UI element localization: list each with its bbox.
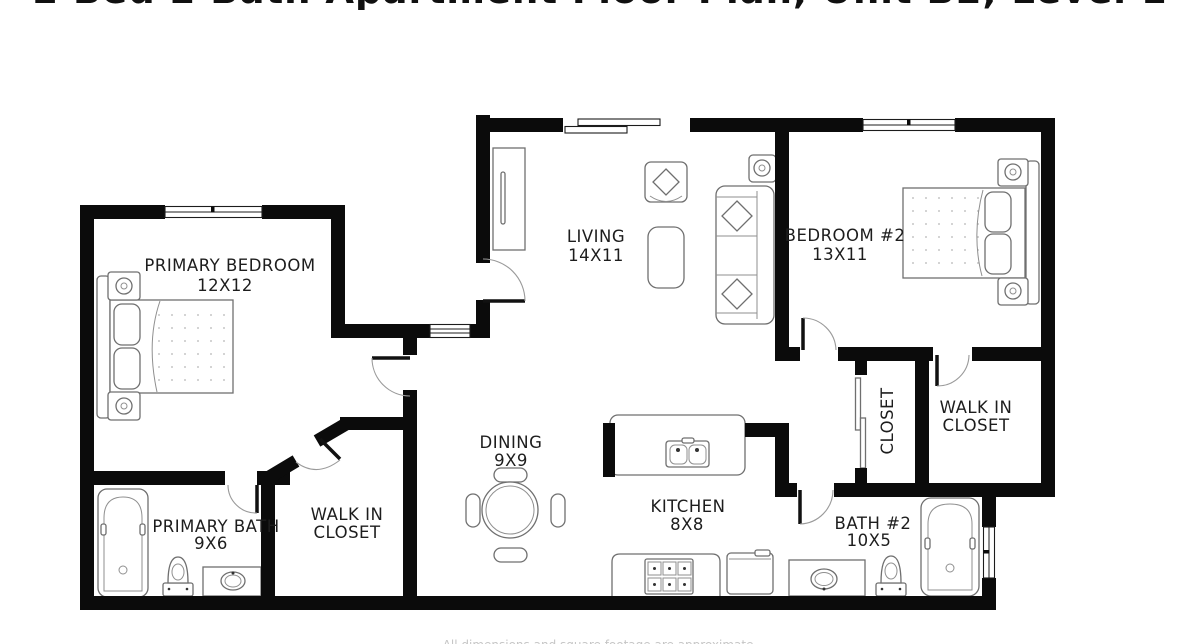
label-closet: CLOSET	[878, 387, 897, 455]
stove-icon	[645, 559, 693, 594]
bathtub-icon	[98, 489, 148, 597]
nightstand-icon	[108, 392, 140, 420]
sofa	[716, 186, 774, 324]
label-walk-in-closet-primary-2: CLOSET	[313, 523, 381, 542]
wall	[982, 578, 996, 596]
label-kitchen: KITCHEN	[651, 497, 726, 516]
window	[430, 325, 470, 338]
entry-door	[483, 259, 525, 301]
label-walk-in-closet-2-2: CLOSET	[942, 416, 1010, 435]
label-bath2-dims: 10X5	[847, 531, 892, 550]
label-walk-in-closet-2-1: WALK IN	[940, 398, 1013, 417]
label-bedroom2: BEDROOM #2	[785, 226, 906, 245]
wall	[80, 471, 225, 485]
toilet-icon	[876, 556, 906, 596]
armchair	[645, 162, 687, 202]
refrigerator-icon	[727, 550, 773, 594]
kitchen-island	[610, 415, 745, 475]
coffee-table	[648, 227, 684, 288]
sink-vanity	[789, 560, 865, 596]
cropped-disclaimer-text: All dimensions and square footage are ap…	[0, 638, 1200, 644]
closet-sliding-doors	[856, 378, 866, 468]
wall	[80, 596, 996, 610]
dining-set	[466, 468, 565, 562]
toilet-icon	[163, 557, 193, 596]
bathtub-icon	[921, 498, 979, 596]
wall	[915, 353, 929, 497]
walk-in-closet2-door	[937, 355, 969, 386]
wall	[261, 485, 275, 596]
wall	[476, 118, 563, 132]
media-console	[493, 148, 525, 250]
nightstand-icon	[108, 272, 140, 300]
floor-plan-drawing: PRIMARY BEDROOM 12X12 LIVING 14X11 BEDRO…	[0, 0, 1200, 644]
wall	[603, 423, 615, 477]
window	[165, 207, 262, 218]
label-walk-in-closet-primary-1: WALK IN	[311, 505, 384, 524]
label-dining: DINING	[480, 433, 543, 452]
wall	[80, 205, 165, 219]
wall	[972, 347, 1041, 361]
label-primary-bedroom-dims: 12X12	[197, 276, 253, 295]
wall	[745, 423, 789, 437]
wall	[403, 338, 417, 355]
window	[863, 120, 955, 131]
bath2-door	[800, 490, 833, 524]
wall	[340, 417, 417, 430]
wall	[476, 300, 490, 338]
wall	[331, 205, 345, 338]
primary-bath-door	[228, 485, 257, 513]
wall-diagonal	[266, 461, 296, 479]
side-table	[749, 155, 776, 182]
wall	[476, 115, 490, 263]
wall	[690, 118, 863, 132]
wall	[955, 118, 1055, 132]
label-dining-dims: 9X9	[494, 451, 528, 470]
wall	[775, 347, 800, 361]
wall	[775, 483, 797, 497]
wall	[834, 483, 1055, 497]
label-living-dims: 14X11	[568, 246, 624, 265]
label-bedroom2-dims: 13X11	[812, 245, 868, 264]
label-primary-bath-dims: 9X6	[194, 534, 228, 553]
bedroom2-door	[803, 318, 836, 350]
label-living: LIVING	[567, 227, 625, 246]
nightstand-icon	[998, 278, 1028, 305]
sliding-door	[565, 119, 660, 133]
label-primary-bedroom: PRIMARY BEDROOM	[144, 256, 315, 275]
label-kitchen-dims: 8X8	[670, 515, 704, 534]
primary-walk-in-closet-door	[296, 439, 340, 470]
wall	[331, 324, 430, 338]
floor-plan-page: 2 Bed 2 Bath Apartment Floor Plan, Unit …	[0, 0, 1200, 644]
wall	[855, 353, 867, 375]
wall	[80, 205, 94, 610]
wall	[1041, 118, 1055, 495]
window	[984, 527, 995, 578]
sink-vanity	[203, 567, 261, 596]
nightstand-icon	[998, 159, 1028, 186]
cropped-disclaimer-strip: All dimensions and square footage are ap…	[0, 638, 1200, 644]
wall	[982, 497, 996, 527]
